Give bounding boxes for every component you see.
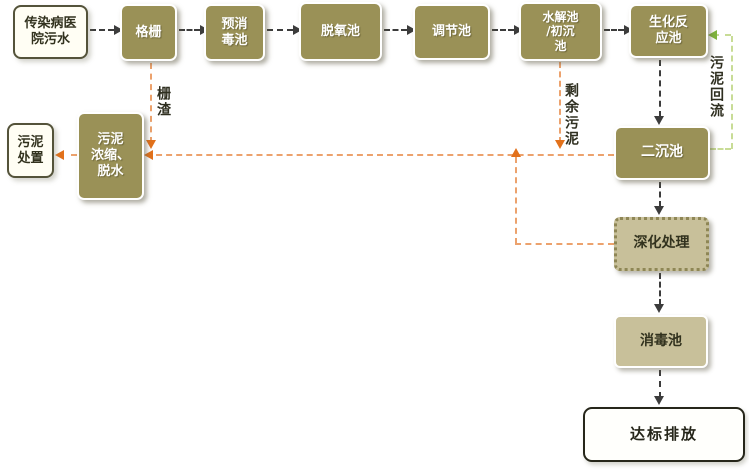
arrowhead-second-to-advanced <box>654 206 664 215</box>
node-secondary-sedimentation-tank: 二沉池 <box>614 126 710 180</box>
node-disinfection-tank: 消毒池 <box>614 315 708 368</box>
arrowhead-thickening-to-disposal <box>55 150 64 160</box>
node-regulating-tank: 调节池 <box>413 4 490 60</box>
edge-grille-to-pre <box>179 29 200 31</box>
arrowhead-bio-to-second <box>654 116 664 125</box>
arrowhead-sludge-return-to-bio <box>708 30 717 40</box>
label-sludge-return: 污泥回流 <box>709 55 723 119</box>
edge-deox-to-reg <box>384 29 407 31</box>
node-standard-discharge: 达标排放 <box>583 407 745 462</box>
node-deoxygenation-tank: 脱氧池 <box>299 2 382 61</box>
node-sludge-thickening-dewatering: 污泥 浓缩、 脱水 <box>77 112 144 200</box>
edge-hydro-to-bio <box>604 29 624 31</box>
arrowhead-advanced-to-disinf <box>654 304 664 313</box>
arrowhead-advanced-sludge-return <box>511 148 521 157</box>
node-pre-disinfection-tank: 预消 毒池 <box>204 4 265 61</box>
edge-reg-to-hydro <box>492 29 514 31</box>
node-grille: 格栅 <box>120 4 177 61</box>
edge-pre-to-deox <box>267 29 293 31</box>
edge-advanced-to-disinf <box>659 273 661 305</box>
node-biochemical-reaction-tank: 生化反 应池 <box>629 4 708 58</box>
edge-bio-to-second <box>659 60 661 117</box>
label-excess-sludge: 剩余污泥 <box>564 83 578 147</box>
edge-hospital-to-grille <box>90 29 114 31</box>
arrowhead-disinf-to-discharge <box>654 396 664 405</box>
arrowhead-screen-residue <box>146 140 156 149</box>
edge-sludge-return-vertical <box>731 36 733 149</box>
edge-grille-screen-residue <box>150 63 152 143</box>
edge-disinf-to-discharge <box>659 370 661 398</box>
label-screen-residue: 栅渣 <box>156 86 170 118</box>
arrowhead-sludge-to-thickening <box>144 150 153 160</box>
edge-sludge-return-bottom <box>710 148 731 150</box>
edge-hydro-excess-sludge <box>559 62 561 143</box>
edge-sludge-main-line <box>146 154 614 156</box>
node-hydrolysis-primary-tank: 水解池 /初沉 池 <box>519 2 602 61</box>
edge-second-to-advanced <box>659 182 661 207</box>
process-flow-diagram: 栅渣 剩余污泥 污泥回流 传染病医 院污水 格栅 预消 毒池 脱氧池 调节池 水… <box>0 0 749 473</box>
node-sludge-disposal: 污泥 处置 <box>7 123 54 178</box>
node-advanced-treatment: 深化处理 <box>614 217 709 271</box>
node-hospital-sewage: 传染病医 院污水 <box>13 5 88 59</box>
edge-advanced-sludge-return-horizontal <box>515 243 614 245</box>
edge-advanced-sludge-return-vertical <box>515 157 517 244</box>
